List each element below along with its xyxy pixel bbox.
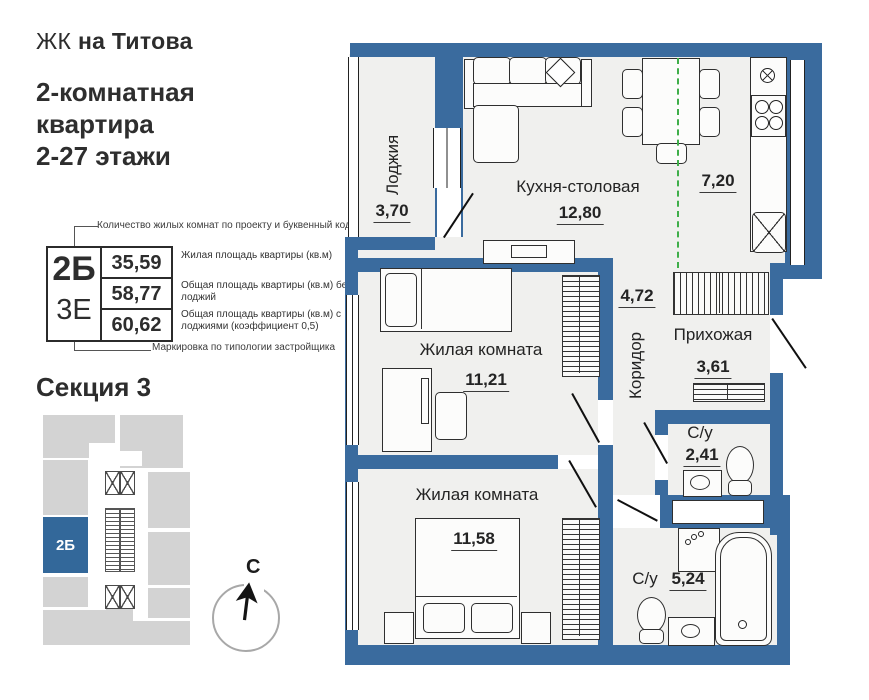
sofa-chaise (473, 105, 519, 163)
sofa-seat (473, 83, 583, 107)
elevator-icon (120, 471, 135, 495)
minimap-unit-label: 2Б (56, 537, 75, 554)
bed-pillow (423, 603, 465, 633)
toilet-tank (728, 480, 752, 496)
elevator-icon (105, 471, 120, 495)
toilet-bowl (637, 597, 666, 633)
dining-table (642, 58, 700, 145)
window (346, 295, 359, 445)
brand: ЖК на Титова (36, 28, 193, 55)
toilet-bowl (726, 446, 754, 484)
wall (350, 237, 435, 250)
duct-niche (672, 500, 764, 524)
sofa-back-cushion (473, 57, 511, 85)
hall-wardrobe (673, 272, 769, 315)
minimap-block (43, 577, 88, 607)
apartment-plan: Лоджия 3,70 Кухня-столовая 12,80 7,20 4,… (345, 40, 822, 665)
minimap-block-notch (120, 451, 142, 466)
minimap-block (43, 460, 88, 515)
minimap-block-notch (89, 443, 115, 458)
burner-icon (755, 100, 769, 114)
wall (655, 410, 783, 424)
room2-label: Жилая комната (416, 485, 539, 505)
washer-knob (691, 534, 697, 540)
burner-icon (755, 116, 769, 130)
section-title: Секция 3 (36, 372, 151, 403)
sofa-armrest (581, 59, 592, 107)
minimap-block (106, 608, 133, 645)
kitchen-sink-icon (752, 212, 786, 253)
burner-icon (769, 100, 783, 114)
blanket-line (416, 596, 517, 597)
wardrobe-rail (579, 277, 580, 373)
hallway-label: Прихожая (674, 325, 753, 345)
chair (622, 69, 643, 99)
elevator-icon (105, 585, 120, 609)
area-living-value: 35,59 (100, 246, 173, 280)
window (348, 57, 359, 237)
nightstand (384, 612, 414, 644)
type-code-box: 2Б 3Е (46, 246, 102, 342)
desk-chair (435, 392, 467, 440)
minimap-unit-highlight[interactable]: 2Б (43, 517, 88, 573)
washer-knob (698, 531, 704, 537)
burner-icon (769, 116, 783, 130)
window (346, 482, 359, 630)
bath2-label: С/у (632, 569, 658, 589)
chair (656, 143, 687, 164)
elevator-icon (120, 585, 135, 609)
area-total-value: 58,77 (100, 277, 173, 311)
area-total-label: Общая площадь квартиры (кв.м) без лоджий (181, 280, 353, 303)
wall (598, 258, 613, 648)
floorplan-page: ЖК на Титова 2-комнатная квартира 2-27 э… (0, 0, 869, 700)
chair (699, 69, 720, 99)
wall (777, 520, 790, 665)
sofa-back-cushion (509, 57, 547, 85)
minimap-block (43, 610, 110, 645)
legend-top-connector (74, 226, 98, 247)
bathroom-sink-basin (690, 475, 710, 490)
washer-knob (685, 539, 691, 545)
stairs-icon (105, 508, 120, 572)
toilet-base (639, 629, 664, 644)
bathtub-drain (738, 620, 747, 629)
compass-arrow-icon (228, 578, 265, 626)
vent-icon (760, 68, 775, 83)
minimap-block (148, 532, 190, 585)
chair (699, 107, 720, 137)
wardrobe-rail (579, 520, 580, 636)
chair (622, 107, 643, 137)
page-title: 2-комнатная квартира 2-27 этажи (36, 76, 195, 172)
door-opening (558, 455, 598, 469)
door-opening (598, 400, 613, 445)
bath1-area: 2,41 (683, 445, 720, 467)
corridor-area: 4,72 (618, 286, 655, 308)
hallway-area: 3,61 (694, 357, 731, 379)
brand-prefix: ЖК (36, 28, 71, 54)
wall (350, 43, 822, 57)
section-minimap: 2Б (42, 413, 190, 645)
title-line-1: 2-комнатная (36, 76, 195, 108)
room1-area: 11,21 (463, 370, 509, 392)
loggia-area: 3,70 (373, 201, 410, 223)
compass-north-label: С (246, 556, 260, 579)
wardrobe (562, 518, 600, 640)
nightstand (521, 612, 551, 644)
kitchen-zone-divider (677, 58, 679, 268)
minimap-block (148, 472, 190, 528)
kitchen-zone-area: 7,20 (699, 171, 736, 193)
window (433, 128, 461, 188)
room2-area: 11,58 (451, 529, 497, 551)
room1-label: Жилая комната (420, 340, 543, 360)
wardrobe (562, 275, 600, 377)
brand-name: на Титова (78, 28, 193, 54)
shoe-rack (693, 383, 765, 402)
bed-pillow (471, 603, 513, 633)
minimap-block (148, 588, 190, 618)
area-living-label: Жилая площадь квартиры (кв.м) (181, 250, 353, 262)
area-total-loggia-label: Общая площадь квартиры (кв.м) с лоджиями… (181, 309, 353, 332)
legend-bottom-note: Маркировка по типологии застройщика (152, 342, 335, 353)
title-line-3: 2-27 этажи (36, 140, 195, 172)
tv-console-detail (511, 245, 547, 258)
kitchen-label: Кухня-столовая (516, 177, 639, 197)
bed-pillow (385, 273, 417, 327)
bath1-label: С/у (687, 423, 713, 443)
type-code-secondary: 3Е (48, 294, 100, 327)
bath2-area: 5,24 (669, 569, 706, 591)
corridor-label: Коридор (626, 318, 648, 413)
hall-wardrobe-divider (719, 272, 720, 313)
type-code-primary: 2Б (48, 250, 100, 289)
vanity-basin (681, 624, 700, 638)
window (790, 60, 805, 265)
area-total-loggia-value: 60,62 (100, 308, 173, 342)
legend-top-note: Количество жилых комнат по проекту и бук… (97, 220, 351, 231)
wall (345, 645, 790, 665)
monitor (421, 378, 429, 424)
stairs-icon (120, 508, 135, 572)
bed-line (421, 269, 422, 329)
shoe-rack-divider (727, 383, 728, 400)
kitchen-area: 12,80 (557, 203, 604, 225)
title-line-2: квартира (36, 108, 195, 140)
